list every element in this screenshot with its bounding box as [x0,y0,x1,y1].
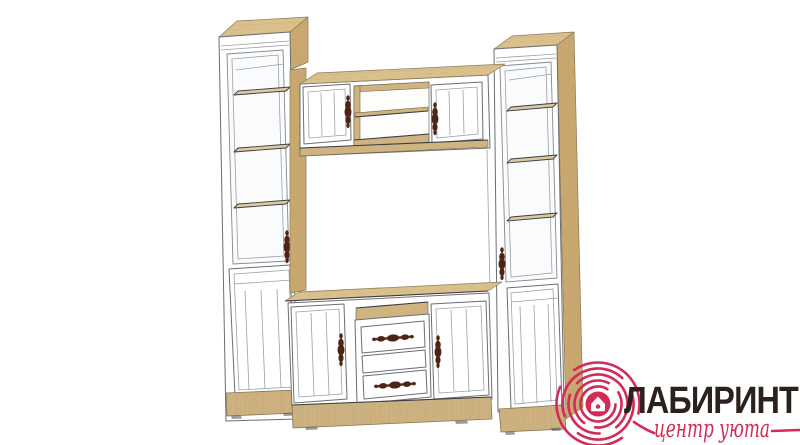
product-image: ЛАБИРИНТ центр уюта [0,0,800,445]
open-shelf-box [354,82,429,149]
glass-door [227,50,289,264]
glass-door [500,62,557,282]
right-cabinet [494,32,583,435]
drawer-unit [355,302,431,404]
bridge-cabinet [300,64,505,156]
brand-logo: ЛАБИРИНТ центр уюта [550,356,799,445]
panel-door [431,82,483,143]
brand-subtitle: центр уюта [654,414,770,443]
panel-door [229,265,295,395]
tv-stand [285,282,502,430]
